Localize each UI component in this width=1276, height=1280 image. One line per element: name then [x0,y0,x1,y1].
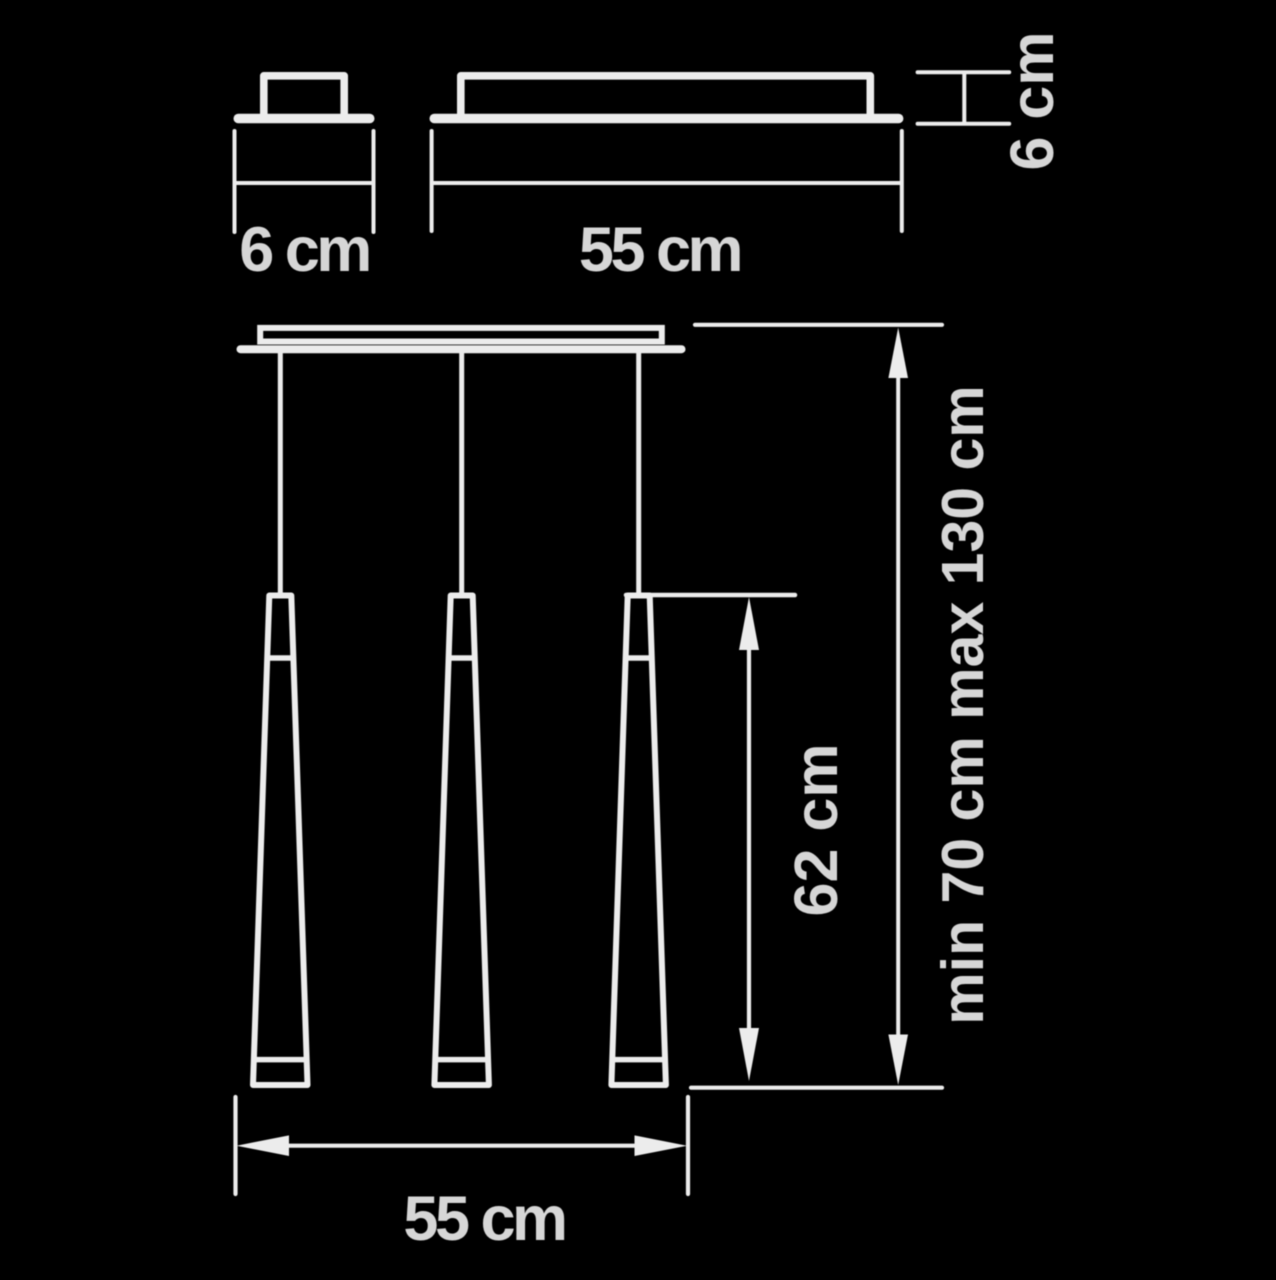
svg-text:55 cm: 55 cm [579,215,741,285]
svg-text:6 cm: 6 cm [998,31,1066,170]
svg-text:62 cm: 62 cm [782,744,850,917]
svg-text:6 cm: 6 cm [239,215,369,285]
svg-text:55 cm: 55 cm [403,1184,565,1254]
svg-text:min 70 cm max 130 cm: min 70 cm max 130 cm [930,385,996,1025]
